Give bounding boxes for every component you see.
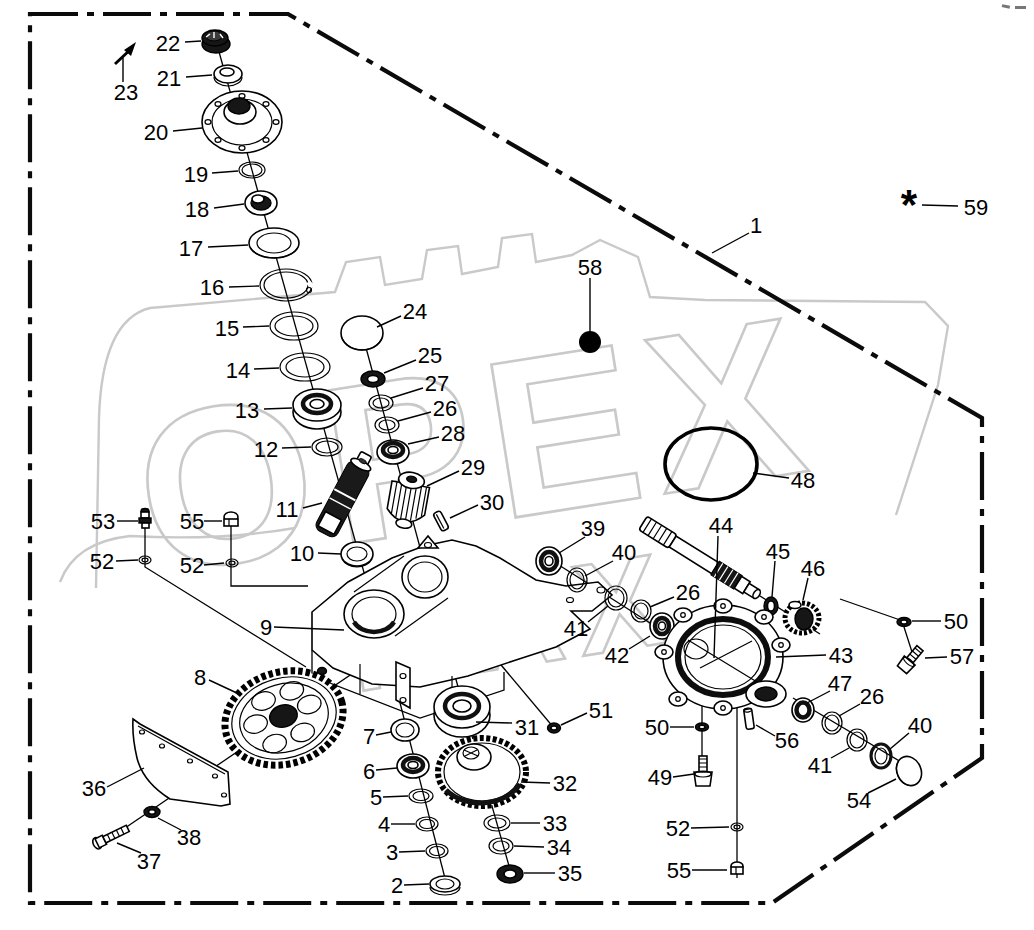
part-label-38: 38 <box>177 825 201 850</box>
bearing-28 <box>377 440 409 464</box>
part-label-53: 53 <box>91 509 115 534</box>
ring-41-right <box>847 729 867 751</box>
leader-line-45 <box>772 561 775 597</box>
part-label-34: 34 <box>547 835 571 860</box>
part-label-32: 32 <box>553 771 577 796</box>
leader-line-22 <box>185 41 201 42</box>
washer-38 <box>144 807 160 818</box>
leader-line-52 <box>691 827 729 828</box>
ring-7 <box>391 719 419 741</box>
part-label-49: 49 <box>648 765 672 790</box>
leader-line-31 <box>476 722 512 723</box>
leader-line-40 <box>890 733 909 749</box>
part-label-2: 2 <box>391 873 403 898</box>
part-label-26: 26 <box>676 580 700 605</box>
part-label-9: 9 <box>260 615 272 640</box>
guard-plate-36 <box>133 719 230 806</box>
leader-line-32 <box>521 782 550 783</box>
part-label-57: 57 <box>950 644 974 669</box>
part-label-37: 37 <box>137 849 161 874</box>
leader-line-24 <box>377 316 401 327</box>
part-label-30: 30 <box>480 490 504 515</box>
part-label-7: 7 <box>363 724 375 749</box>
cap-54 <box>892 752 926 789</box>
part-label-50: 50 <box>944 609 968 634</box>
ring-25 <box>361 371 385 387</box>
center-gear-stack <box>434 686 561 883</box>
gear-32 <box>438 738 526 806</box>
part-label-50: 50 <box>645 715 669 740</box>
part-label-10: 10 <box>290 541 314 566</box>
part-label-28: 28 <box>441 421 465 446</box>
ring-35 <box>497 865 523 883</box>
leader-line-54 <box>868 779 896 793</box>
bearing-31 <box>434 686 490 737</box>
part-label-56: 56 <box>775 728 799 753</box>
seal-18 <box>245 191 277 215</box>
part-label-43: 43 <box>829 643 853 668</box>
bearing-13 <box>293 389 341 429</box>
part-label-27: 27 <box>425 371 449 396</box>
part-label-31: 31 <box>515 715 539 740</box>
part-label-3: 3 <box>386 840 398 865</box>
plug-58 <box>579 331 601 353</box>
leader-line-59 <box>922 205 958 206</box>
part-label-8: 8 <box>194 665 206 690</box>
part-label-17: 17 <box>179 236 203 261</box>
washer-21 <box>214 65 242 86</box>
leader-line-56 <box>756 725 775 736</box>
hub-flange-20 <box>202 91 282 153</box>
parts-diagram-page: OPEX MAX <box>0 0 1034 930</box>
leader-line-18 <box>214 204 244 208</box>
part-label-19: 19 <box>184 162 208 187</box>
bearing-6 <box>397 754 429 778</box>
leader-line-10 <box>318 553 341 554</box>
part-label-41: 41 <box>564 616 588 641</box>
part-label-40: 40 <box>612 540 636 565</box>
part-label-23: 23 <box>114 80 138 105</box>
leader-line-8 <box>209 680 239 694</box>
leader-line-34 <box>514 846 544 847</box>
roll-pin-56 <box>744 708 755 730</box>
part-label-55: 55 <box>180 509 204 534</box>
part-label-5: 5 <box>370 785 382 810</box>
spur-gear-8 <box>214 657 355 779</box>
part-label-20: 20 <box>144 120 168 145</box>
part-label-54: 54 <box>847 788 871 813</box>
leader-line-26 <box>839 704 860 716</box>
part-label-41: 41 <box>808 753 832 778</box>
leader-line-21 <box>186 75 212 77</box>
exploded-view-drawing: OPEX MAX <box>0 0 1034 930</box>
washer-50-right <box>897 618 911 627</box>
part-label-22: 22 <box>156 31 180 56</box>
part-label-45: 45 <box>766 539 790 564</box>
ring-10 <box>341 542 373 567</box>
part-label-52: 52 <box>666 816 690 841</box>
part-label-1: 1 <box>750 213 762 238</box>
washer-50-left <box>696 723 709 731</box>
o-ring-51 <box>548 723 561 733</box>
part-label-44: 44 <box>709 513 733 538</box>
leader-line-49 <box>673 774 694 777</box>
leader-line-15 <box>243 326 269 327</box>
part-label-21: 21 <box>157 66 181 91</box>
leader-line-46 <box>803 578 808 600</box>
part-label-29: 29 <box>461 455 485 480</box>
leader-line-47 <box>807 691 830 703</box>
leader-line-16 <box>229 286 259 287</box>
plug-55-left <box>224 512 238 526</box>
leader-line-51 <box>561 713 587 725</box>
leader-line-7 <box>376 732 391 735</box>
bearing-cover-43 <box>655 599 790 715</box>
part-label-40: 40 <box>908 713 932 738</box>
part-label-13: 13 <box>235 398 259 423</box>
leader-line-2 <box>404 884 429 885</box>
bevel-pinion-46 <box>785 602 819 634</box>
leader-line-52 <box>116 560 138 561</box>
seal-39 <box>536 547 562 575</box>
seal-2 <box>430 876 460 895</box>
leader-line-1 <box>712 233 749 253</box>
leader-line-19 <box>212 171 238 173</box>
ring-17 <box>249 228 299 258</box>
ring-3 <box>426 844 448 858</box>
leader-line-20 <box>173 128 202 131</box>
ring-15 <box>270 312 318 340</box>
part-label-12: 12 <box>254 437 278 462</box>
part-label-25: 25 <box>418 343 442 368</box>
part-label-59: 59 <box>964 195 988 220</box>
part-label-14: 14 <box>226 358 250 383</box>
part-label-55: 55 <box>667 858 691 883</box>
part-label-46: 46 <box>801 556 825 581</box>
part-label-4: 4 <box>378 812 390 837</box>
ring-5 <box>409 789 433 803</box>
part-label-51: 51 <box>589 698 613 723</box>
part-label-33: 33 <box>543 811 567 836</box>
bolt-49 <box>694 756 712 786</box>
asterisk-symbol: * <box>901 181 918 228</box>
part-label-16: 16 <box>200 275 224 300</box>
ring-34 <box>489 838 513 854</box>
leader-line-57 <box>925 657 947 658</box>
grease-fitting-53 <box>139 509 151 529</box>
ring-40-right <box>871 744 891 768</box>
part-label-52: 52 <box>90 549 114 574</box>
cap-24 <box>341 316 383 350</box>
part-label-35: 35 <box>558 861 582 886</box>
leader-line-6 <box>376 768 397 770</box>
part-label-18: 18 <box>185 197 209 222</box>
part-label-42: 42 <box>605 643 629 668</box>
part-label-36: 36 <box>82 776 106 801</box>
leader-line-41 <box>831 748 849 758</box>
part-label-15: 15 <box>215 316 239 341</box>
leader-line-12 <box>282 447 311 448</box>
part-label-52: 52 <box>180 553 204 578</box>
corner-mark <box>1002 4 1026 9</box>
part-label-24: 24 <box>403 299 427 324</box>
cotter-pin-arrow-23 <box>115 42 136 64</box>
part-label-39: 39 <box>581 516 605 541</box>
leader-line-17 <box>208 245 248 247</box>
leader-line-5 <box>383 796 408 797</box>
part-label-6: 6 <box>363 759 375 784</box>
leader-line-13 <box>264 408 292 409</box>
part-label-11: 11 <box>276 497 299 522</box>
part-label-58: 58 <box>578 255 602 280</box>
part-label-26: 26 <box>860 684 884 709</box>
part-label-47: 47 <box>828 671 852 696</box>
ring-4 <box>416 817 438 831</box>
plug-55-right <box>731 862 743 874</box>
leader-line-3 <box>399 851 425 852</box>
part-label-48: 48 <box>791 468 815 493</box>
leader-line-14 <box>254 368 279 369</box>
part-label-26: 26 <box>433 396 457 421</box>
castle-nut-22 <box>202 30 230 53</box>
leader-line-36 <box>107 768 144 787</box>
